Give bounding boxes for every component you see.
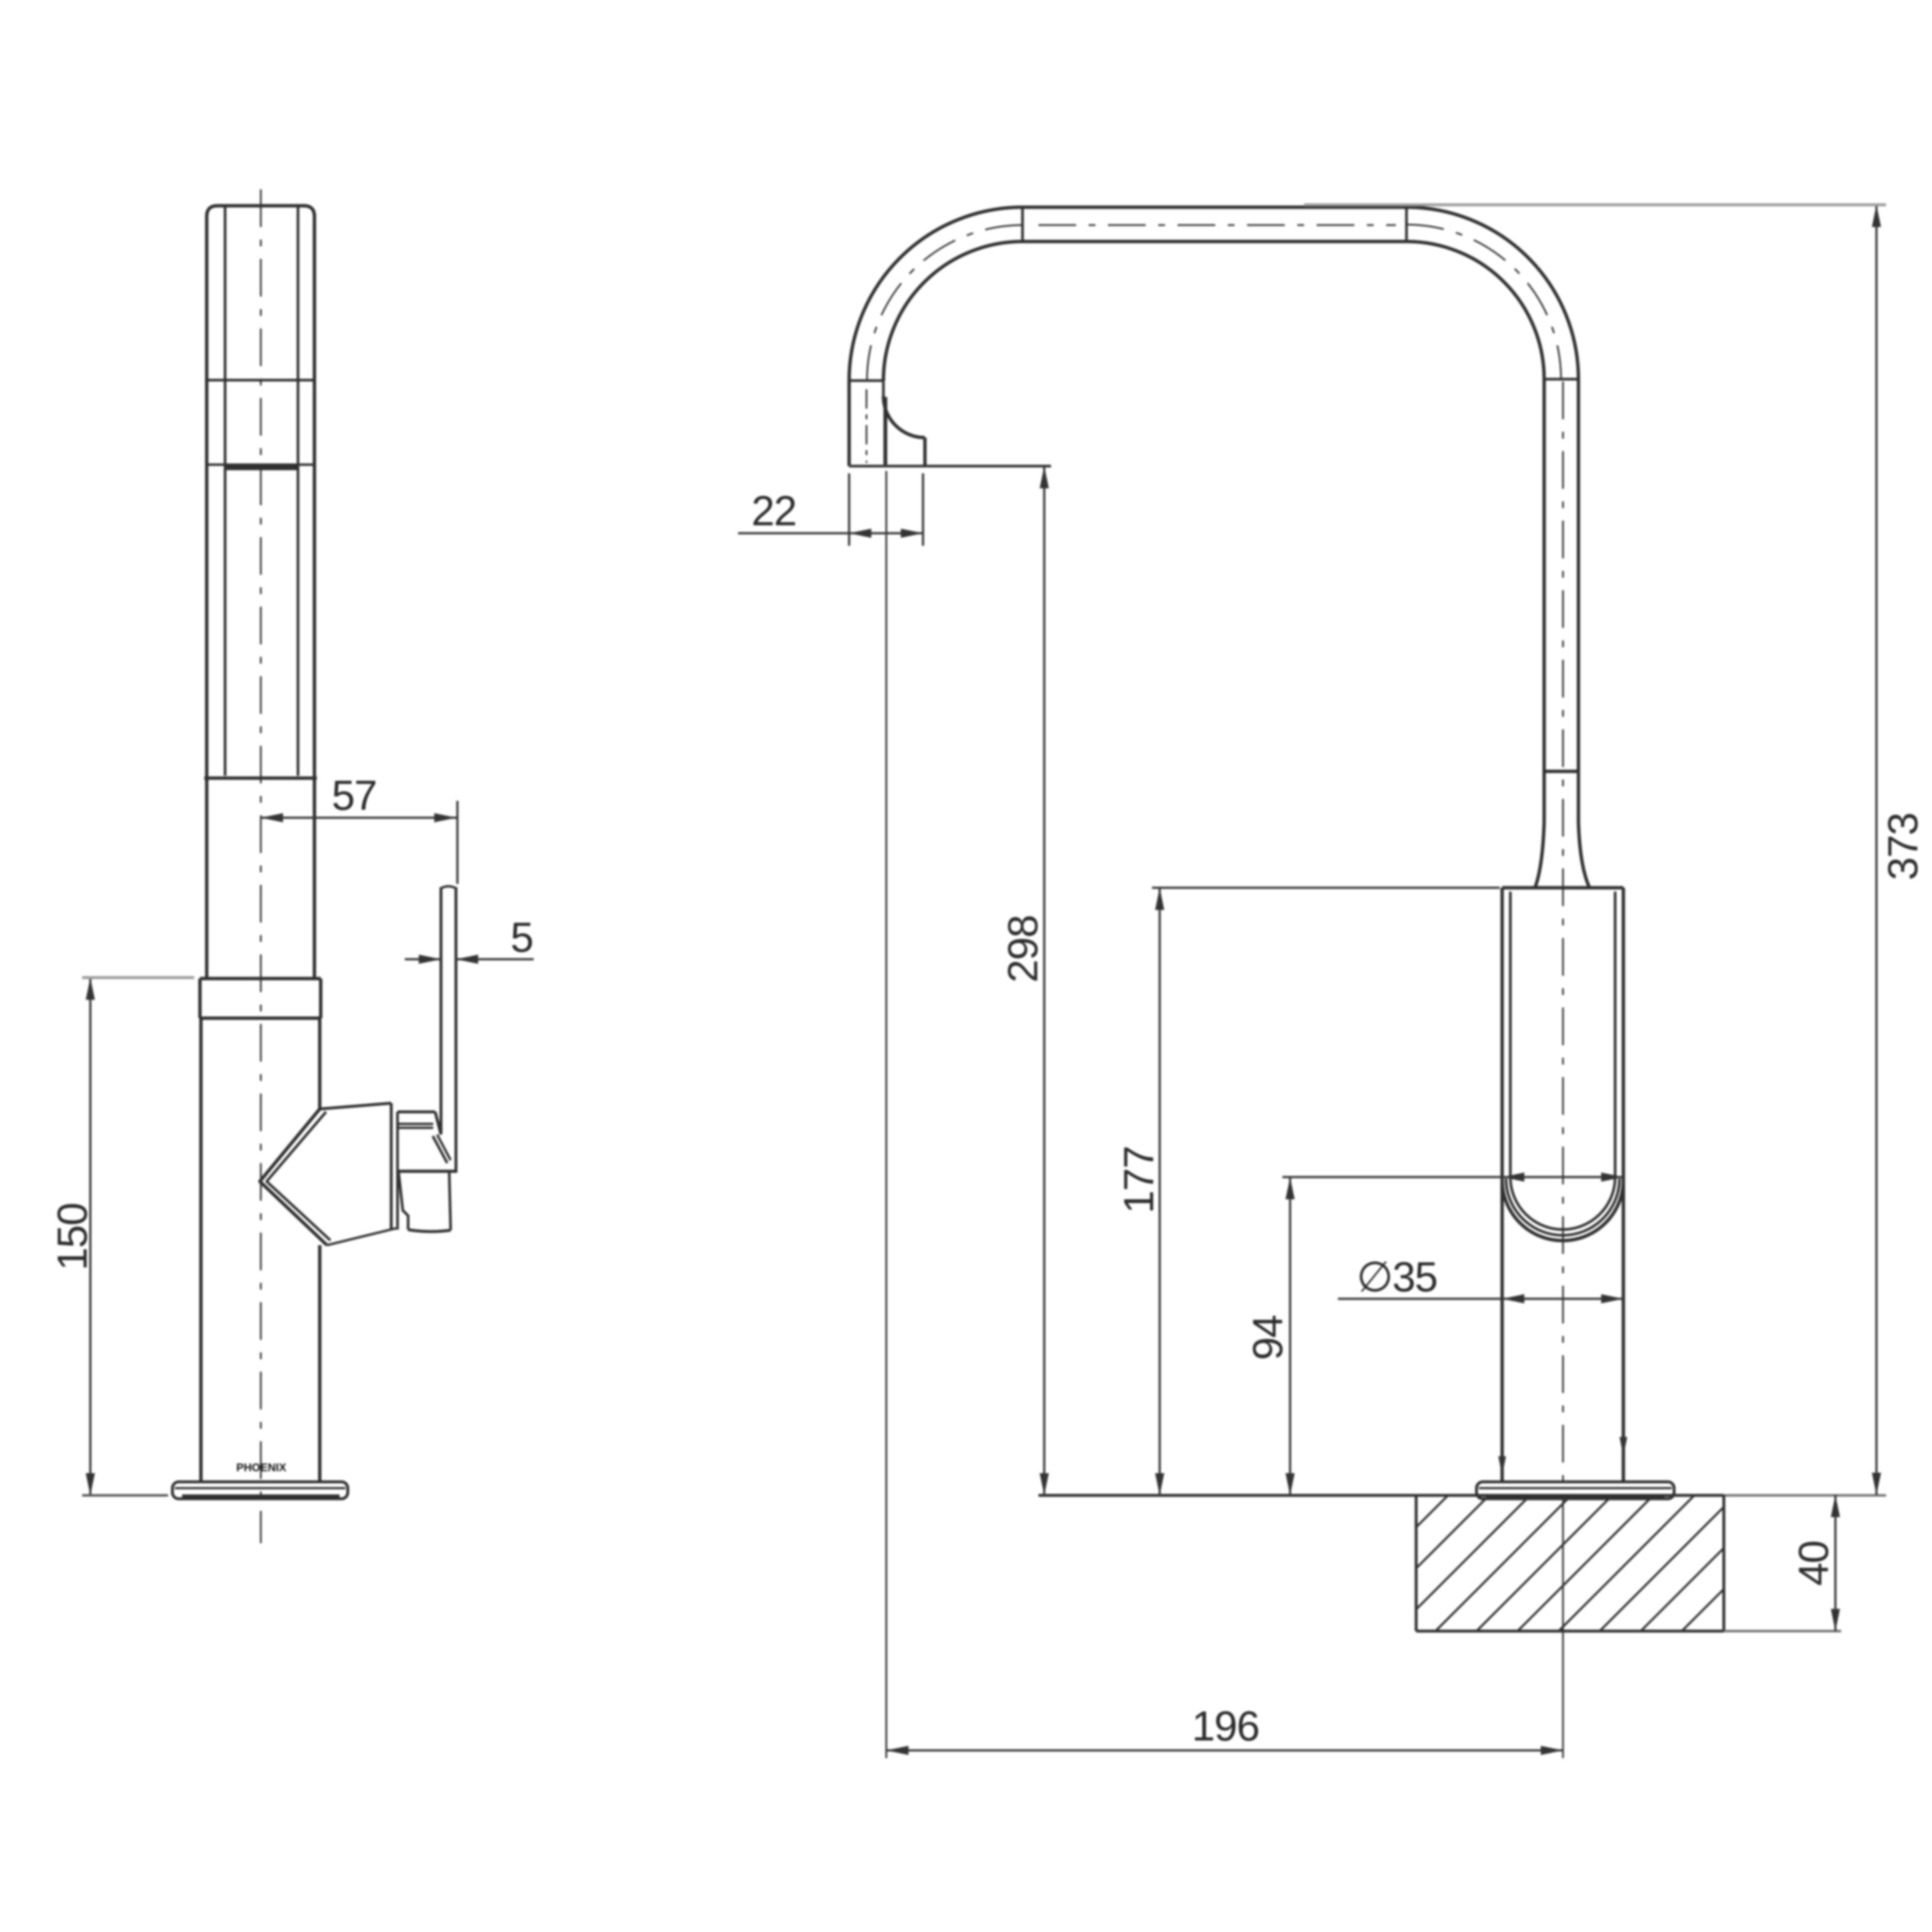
svg-text:40: 40 [1790,1541,1837,1586]
svg-text:5: 5 [511,914,533,961]
svg-text:94: 94 [1245,1316,1292,1361]
svg-text:298: 298 [1000,915,1047,982]
svg-text:∅35: ∅35 [1357,1254,1437,1301]
svg-text:22: 22 [752,488,796,535]
svg-text:177: 177 [1116,1146,1163,1213]
svg-text:PHOENIX: PHOENIX [236,1461,286,1474]
svg-text:373: 373 [1880,813,1927,880]
svg-text:57: 57 [332,772,377,819]
svg-text:196: 196 [1192,1703,1259,1750]
svg-text:150: 150 [49,1203,96,1270]
